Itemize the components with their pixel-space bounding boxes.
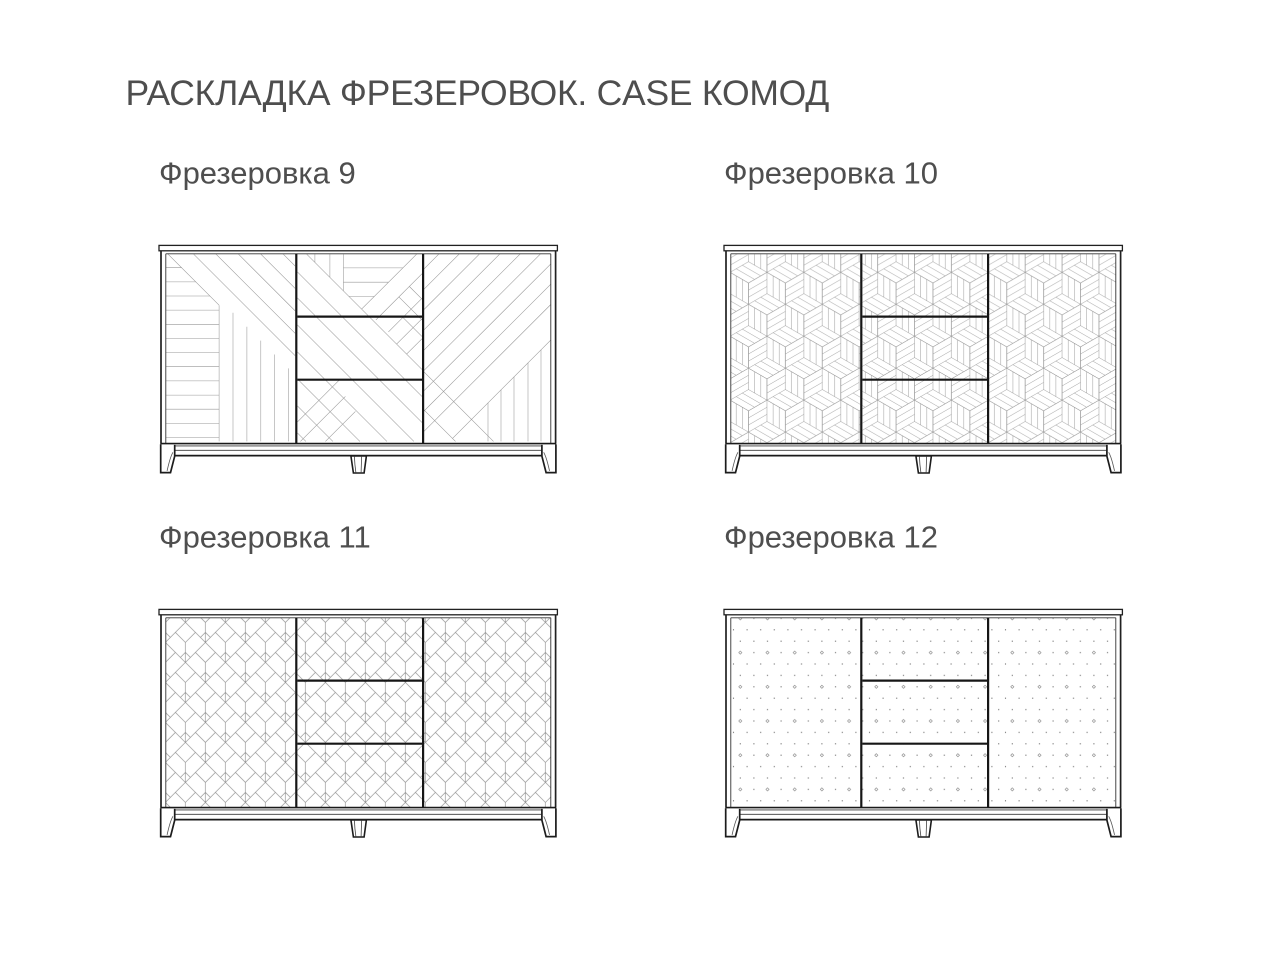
svg-text:Фрезеровка 10: Фрезеровка 10 [724,155,938,190]
svg-text:Фрезеровка 9: Фрезеровка 9 [159,155,356,190]
svg-text:Фрезеровка 12: Фрезеровка 12 [724,519,938,554]
svg-text:Фрезеровка 11: Фрезеровка 11 [159,519,371,554]
svg-text:РАСКЛАДКА ФРЕЗЕРОВОК. CASE КОМ: РАСКЛАДКА ФРЕЗЕРОВОК. CASE КОМОД [126,73,830,113]
